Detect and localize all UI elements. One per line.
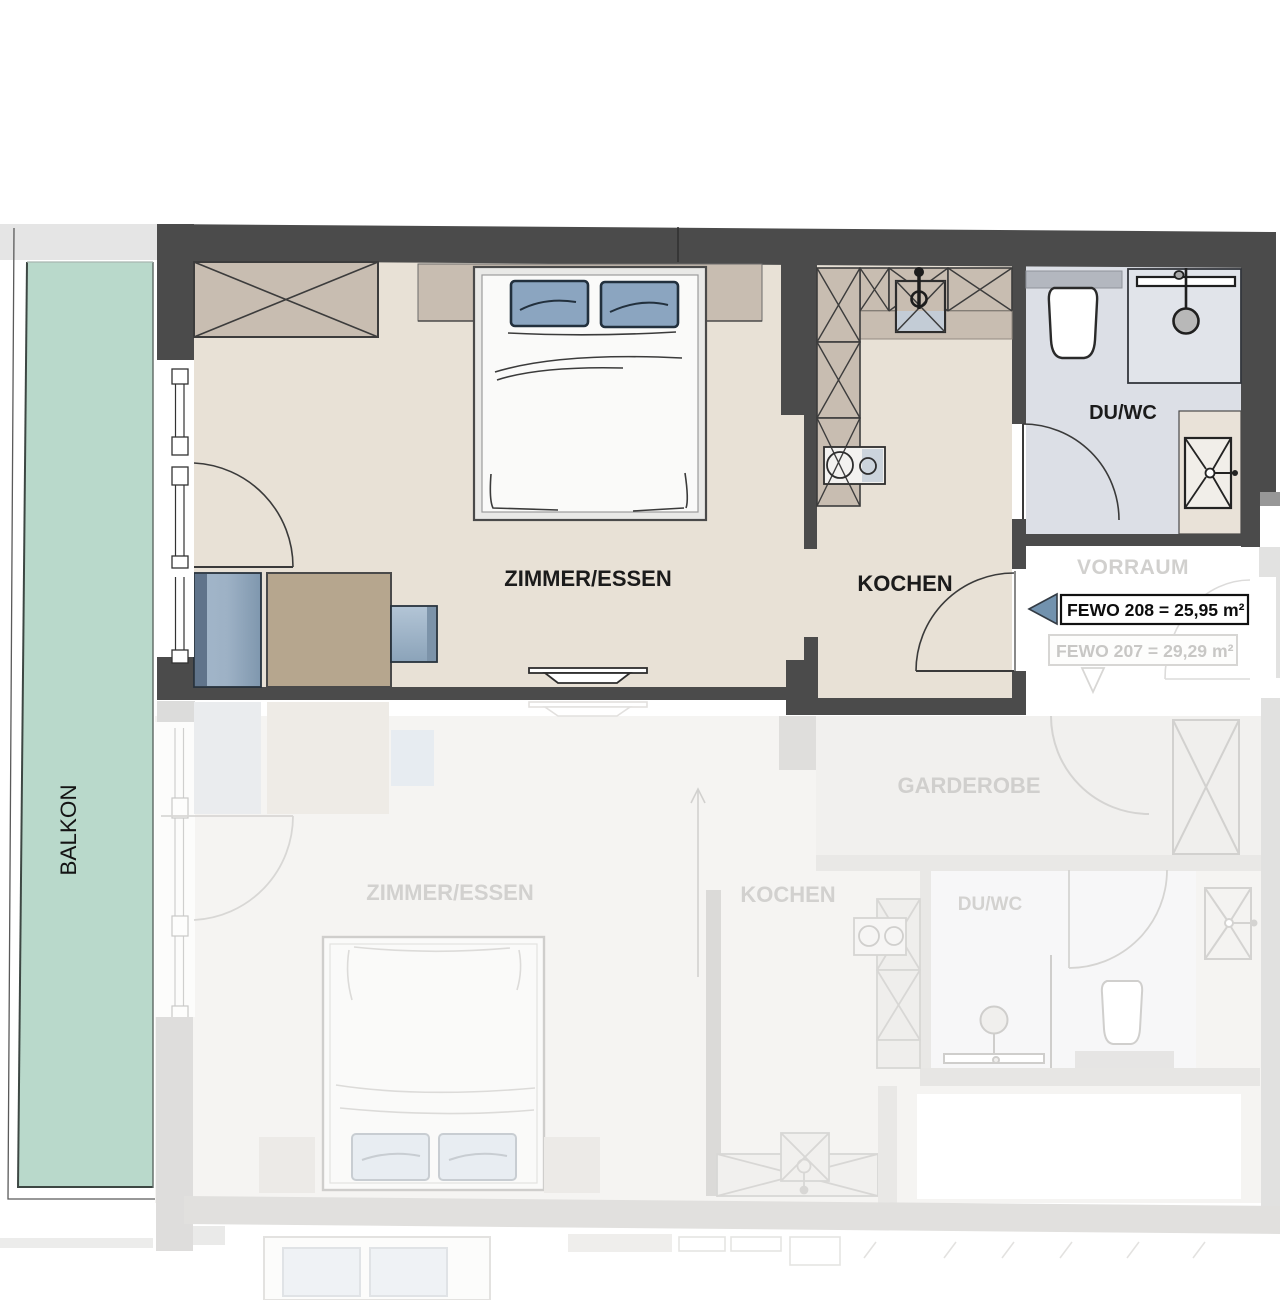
svg-text:ZIMMER/ESSEN: ZIMMER/ESSEN bbox=[366, 880, 533, 905]
svg-text:DU/WC: DU/WC bbox=[1089, 402, 1157, 424]
svg-text:GARDEROBE: GARDEROBE bbox=[897, 773, 1040, 798]
svg-text:VORRAUM: VORRAUM bbox=[1077, 556, 1189, 579]
svg-text:BALKON: BALKON bbox=[56, 784, 81, 875]
svg-text:FEWO 207 = 29,29 m²: FEWO 207 = 29,29 m² bbox=[1056, 641, 1234, 661]
svg-text:KOCHEN: KOCHEN bbox=[857, 571, 952, 596]
svg-text:DU/WC: DU/WC bbox=[958, 894, 1023, 915]
svg-text:ZIMMER/ESSEN: ZIMMER/ESSEN bbox=[504, 566, 671, 591]
svg-text:KOCHEN: KOCHEN bbox=[740, 882, 835, 907]
svg-text:FEWO 208 = 25,95 m²: FEWO 208 = 25,95 m² bbox=[1067, 600, 1245, 620]
